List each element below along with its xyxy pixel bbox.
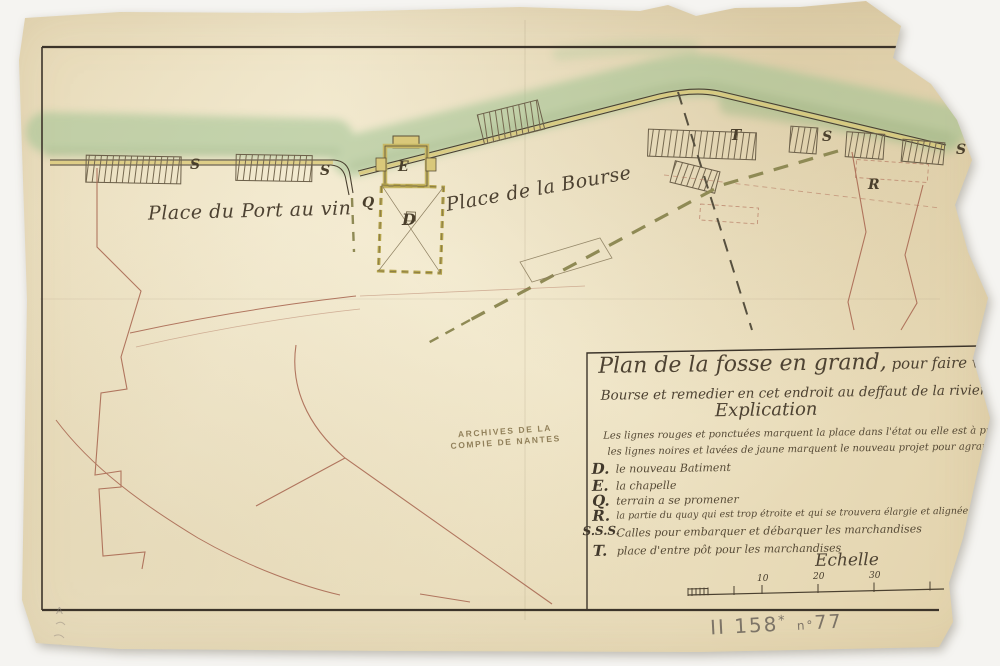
- map-title-line1: Plan de la fosse en grand, pour faire vo…: [598, 349, 1000, 378]
- letter-s-right-2: S: [956, 143, 966, 157]
- corner-pencil-marks: [54, 622, 66, 647]
- map-title-main: Plan de la fosse en grand,: [598, 350, 887, 379]
- scale-tick-20: 20: [813, 572, 824, 582]
- legend-text-e: la chapelle: [616, 479, 677, 493]
- scale-tick-30: 30: [869, 571, 880, 581]
- legend-key-d: D.: [592, 460, 610, 478]
- scale-label: Echelle: [815, 552, 879, 570]
- letter-s-right-1: S: [822, 130, 832, 144]
- letter-d-building: D: [402, 212, 416, 228]
- legend-text-d: le nouveau Batiment: [616, 461, 731, 476]
- legend-intro-line1: Les lignes rouges et ponctuées marquent …: [603, 426, 1000, 442]
- legend-intro-line2: les lignes noires et lavées de jaune mar…: [607, 442, 1000, 458]
- legend-text-t: place d'entre pôt pour les marchandises: [617, 541, 842, 557]
- scale-tick-10: 10: [757, 574, 768, 584]
- paper-shadow: Place du Port au vin Place de la Bourse …: [0, 0, 1000, 666]
- shelfmark-number: II 158: [709, 612, 778, 640]
- legend-text-q: terrain a se promener: [616, 493, 739, 508]
- map-title-continuation: pour faire voir la maniere: [887, 352, 1000, 373]
- legend-key-t: T.: [593, 542, 608, 560]
- corner-pencil-letter: A: [56, 606, 63, 617]
- letter-e-chapel: E: [398, 160, 409, 174]
- legend-text-sss: Calles pour embarquer et débarquer les m…: [616, 522, 921, 539]
- letter-s-left-1: S: [190, 158, 200, 172]
- letter-s-left-2: S: [320, 164, 330, 178]
- letter-q-promenade: Q: [362, 196, 374, 210]
- shelfmark-piece-number: 77: [814, 611, 843, 634]
- letter-t-entrepot: T: [730, 128, 741, 143]
- scan-background: Place du Port au vin Place de la Bourse …: [0, 0, 1000, 666]
- letter-r-quay: R: [868, 178, 880, 192]
- title-block: Plan de la fosse en grand, pour faire vo…: [586, 342, 1000, 612]
- label-place-du-port-au-vin: Place du Port au vin: [148, 199, 352, 223]
- shelfmark-star: *: [778, 613, 787, 628]
- paper-sheet: Place du Port au vin Place de la Bourse …: [0, 0, 1000, 666]
- legend-text-r: la partie du quay qui est trop étroite e…: [616, 505, 1000, 522]
- explication-heading: Explication: [715, 401, 818, 420]
- legend-key-r: R.: [592, 507, 610, 525]
- legend-key-sss: S.S.S.: [582, 524, 619, 539]
- shelfmark-no-label: n°: [797, 618, 815, 633]
